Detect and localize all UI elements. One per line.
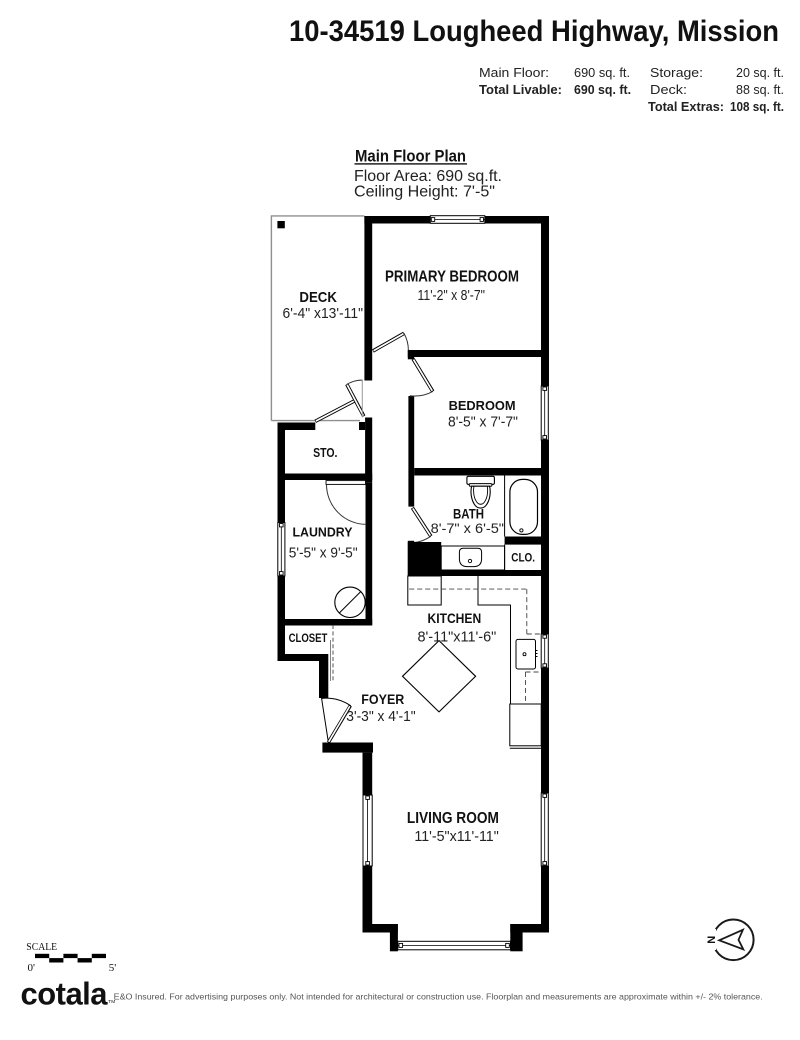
svg-text:11'-5"x11'-11": 11'-5"x11'-11" (414, 828, 498, 845)
svg-text:LAUNDRY: LAUNDRY (293, 526, 354, 540)
svg-text:Ceiling Height: 7'-5": Ceiling Height: 7'-5" (354, 184, 495, 201)
svg-text:8'-11"x11'-6": 8'-11"x11'-6" (418, 629, 497, 646)
svg-text:SCALE: SCALE (26, 941, 57, 953)
svg-text:11'-2" x 8'-7": 11'-2" x 8'-7" (418, 287, 486, 304)
svg-text:8'-5" x 7'-7": 8'-5" x 7'-7" (448, 415, 518, 431)
svg-text:STO.: STO. (313, 445, 337, 460)
svg-text:DECK: DECK (299, 289, 337, 306)
svg-text:Deck:: Deck: (650, 82, 687, 97)
svg-text:CLO.: CLO. (511, 551, 535, 565)
svg-text:PRIMARY BEDROOM: PRIMARY BEDROOM (385, 269, 519, 286)
svg-text:3'-3" x 4'-1": 3'-3" x 4'-1" (346, 709, 415, 725)
svg-text:KITCHEN: KITCHEN (428, 610, 482, 626)
svg-text:FOYER: FOYER (361, 692, 404, 707)
svg-text:BEDROOM: BEDROOM (449, 398, 516, 413)
svg-text:10-34519 Lougheed Highway, Mis: 10-34519 Lougheed Highway, Mission (289, 15, 779, 48)
svg-text:0': 0' (28, 962, 36, 974)
svg-text:108 sq. ft.: 108 sq. ft. (730, 99, 784, 114)
svg-text:CLOSET: CLOSET (289, 631, 328, 645)
svg-text:Total Livable:: Total Livable: (479, 82, 562, 97)
svg-text:88 sq. ft.: 88 sq. ft. (736, 82, 784, 97)
svg-text:Floor Area: 690 sq.ft.: Floor Area: 690 sq.ft. (354, 168, 502, 185)
svg-text:N: N (706, 936, 718, 944)
svg-text:Main Floor:: Main Floor: (479, 65, 549, 80)
svg-text:5': 5' (109, 962, 117, 974)
svg-text:Main Floor Plan: Main Floor Plan (355, 147, 466, 166)
svg-text:690 sq. ft.: 690 sq. ft. (574, 65, 630, 80)
svg-text:LIVING ROOM: LIVING ROOM (407, 810, 499, 827)
svg-text:cotala: cotala (21, 976, 108, 1012)
svg-text:5'-5" x 9'-5": 5'-5" x 9'-5" (289, 545, 358, 562)
svg-text:690 sq. ft.: 690 sq. ft. (574, 82, 631, 97)
svg-text:Total Extras:: Total Extras: (648, 99, 724, 114)
svg-text:6'-4" x13'-11": 6'-4" x13'-11" (283, 305, 364, 322)
svg-text:E&O Insured. For advertising p: E&O Insured. For advertising purposes on… (114, 992, 763, 1002)
svg-text:20 sq. ft.: 20 sq. ft. (736, 65, 784, 80)
svg-text:Storage:: Storage: (650, 65, 703, 80)
svg-text:8'-7" x 6'-5": 8'-7" x 6'-5" (431, 520, 504, 536)
